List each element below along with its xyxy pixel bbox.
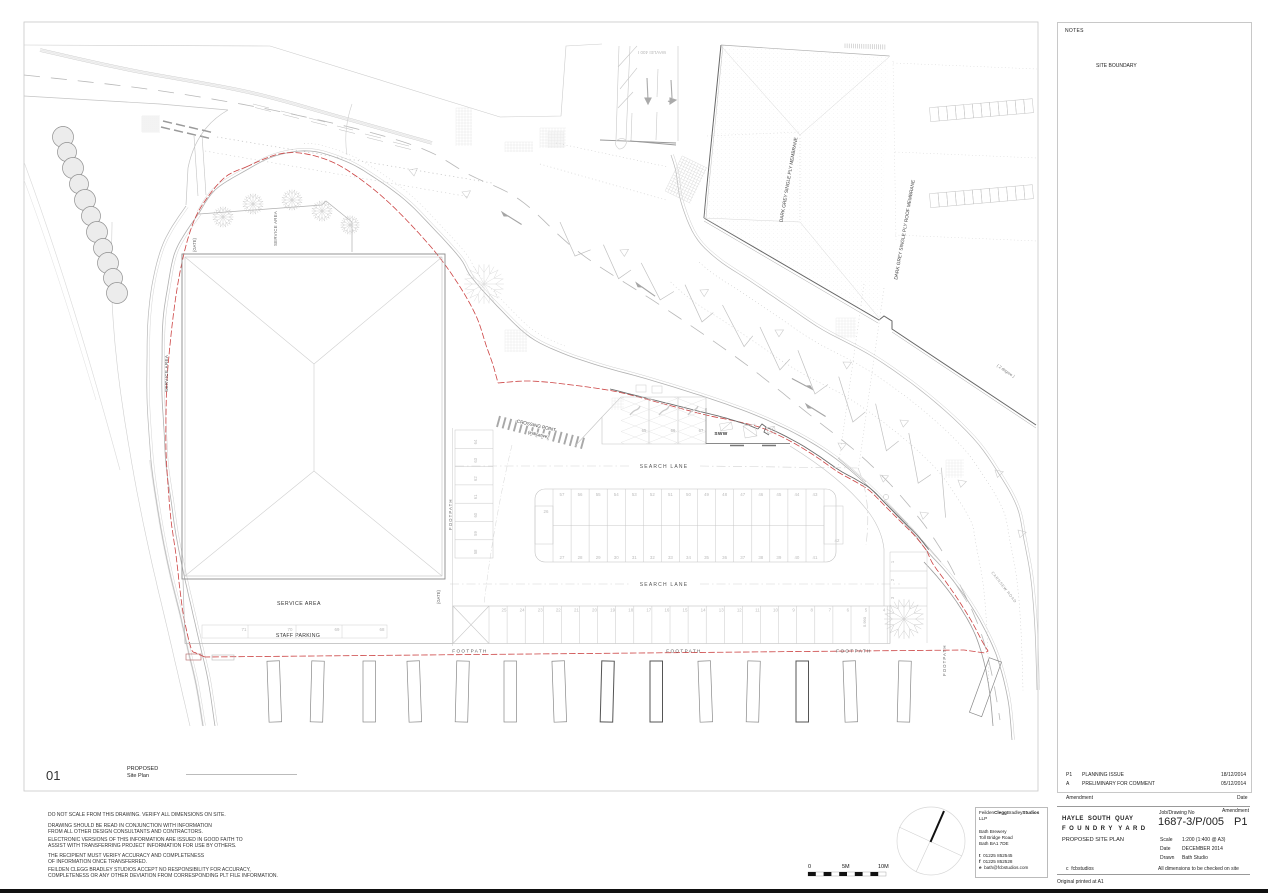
svg-text:19: 19	[610, 608, 615, 613]
svg-text:5.990: 5.990	[862, 616, 867, 627]
svg-text:65: 65	[642, 428, 647, 433]
svg-text:24: 24	[520, 608, 525, 613]
svg-text:9: 9	[792, 608, 795, 613]
svg-text:FOOTPATH: FOOTPATH	[942, 644, 947, 676]
svg-text:52: 52	[650, 492, 655, 497]
svg-text:SEARCH LANE: SEARCH LANE	[640, 582, 689, 588]
svg-text:59: 59	[473, 531, 478, 536]
svg-text:33: 33	[668, 555, 673, 560]
svg-text:5M: 5M	[842, 864, 850, 870]
svg-text:40: 40	[794, 555, 799, 560]
svg-text:44: 44	[794, 492, 799, 497]
svg-text:54: 54	[614, 492, 619, 497]
svg-text:56: 56	[578, 492, 583, 497]
svg-text:28: 28	[578, 555, 583, 560]
svg-text:61: 61	[473, 494, 478, 499]
svg-text:49: 49	[704, 492, 709, 497]
svg-text:DARK GREY SINGLE PLY ROOF MEMB: DARK GREY SINGLE PLY ROOF MEMBRANE	[893, 179, 916, 280]
svg-text:66: 66	[671, 428, 676, 433]
svg-text:1: 1	[890, 560, 895, 563]
svg-text:45: 45	[776, 492, 781, 497]
svg-text:( 2 degree ): ( 2 degree )	[996, 363, 1016, 379]
svg-text:20: 20	[592, 608, 597, 613]
svg-text:50: 50	[686, 492, 691, 497]
svg-text:3: 3	[890, 596, 895, 599]
svg-text:41: 41	[813, 555, 818, 560]
svg-text:2: 2	[890, 578, 895, 581]
svg-text:SEARCH LANE: SEARCH LANE	[640, 464, 689, 470]
svg-text:64: 64	[473, 439, 478, 444]
svg-text:43: 43	[813, 492, 818, 497]
svg-text:22: 22	[556, 608, 561, 613]
svg-text:25: 25	[502, 608, 507, 613]
svg-text:FOOTPATH: FOOTPATH	[666, 649, 702, 654]
svg-text:31: 31	[632, 555, 637, 560]
svg-text:16: 16	[664, 608, 669, 613]
svg-text:47: 47	[740, 492, 745, 497]
svg-text:67: 67	[699, 428, 704, 433]
svg-text:53: 53	[632, 492, 637, 497]
svg-text:58: 58	[473, 549, 478, 554]
svg-text:69: 69	[335, 627, 340, 632]
svg-text:37: 37	[740, 555, 745, 560]
svg-text:34: 34	[686, 555, 691, 560]
svg-text:0: 0	[808, 864, 811, 870]
svg-text:42: 42	[835, 538, 840, 543]
svg-text:10: 10	[773, 608, 778, 613]
svg-text:23: 23	[538, 608, 543, 613]
svg-text:30: 30	[614, 555, 619, 560]
svg-text:60: 60	[473, 512, 478, 517]
svg-text:4: 4	[883, 608, 886, 613]
svg-text:36: 36	[722, 555, 727, 560]
svg-text:48: 48	[722, 492, 727, 497]
svg-text:38: 38	[758, 555, 763, 560]
svg-text:WAVLEI 400 I: WAVLEI 400 I	[638, 50, 666, 55]
svg-text:21: 21	[574, 608, 579, 613]
svg-text:8: 8	[810, 608, 813, 613]
svg-text:29: 29	[596, 555, 601, 560]
svg-text:55: 55	[596, 492, 601, 497]
svg-text:7: 7	[829, 608, 832, 613]
svg-text:18: 18	[628, 608, 633, 613]
svg-text:(GATE): (GATE)	[192, 238, 197, 252]
svg-text:FOOTPATH: FOOTPATH	[452, 649, 488, 654]
svg-text:39: 39	[776, 555, 781, 560]
svg-text:5: 5	[865, 608, 868, 613]
svg-text:71: 71	[242, 627, 247, 632]
svg-text:27: 27	[560, 555, 565, 560]
svg-text:57: 57	[560, 492, 565, 497]
svg-text:SERVICE AREA: SERVICE AREA	[273, 211, 278, 246]
svg-text:6: 6	[847, 608, 850, 613]
svg-text:11: 11	[755, 608, 760, 613]
svg-text:51: 51	[668, 492, 673, 497]
svg-text:70: 70	[288, 627, 293, 632]
svg-text:17: 17	[646, 608, 651, 613]
svg-text:SERVICE AREA: SERVICE AREA	[277, 601, 321, 607]
svg-text:CROSSING POINT: CROSSING POINT	[516, 419, 556, 433]
svg-text:10M: 10M	[878, 864, 889, 870]
svg-text:46: 46	[758, 492, 763, 497]
svg-text:15: 15	[683, 608, 688, 613]
svg-text:SWW: SWW	[714, 431, 727, 437]
svg-text:32: 32	[650, 555, 655, 560]
svg-text:(indicative): (indicative)	[527, 430, 549, 440]
svg-text:35: 35	[704, 555, 709, 560]
svg-text:(GATE): (GATE)	[436, 590, 441, 604]
svg-text:68: 68	[380, 627, 385, 632]
svg-text:CARNSEW ROAD: CARNSEW ROAD	[990, 571, 1017, 604]
svg-text:13: 13	[719, 608, 724, 613]
svg-text:62: 62	[473, 476, 478, 481]
svg-text:SERVICE AREA: SERVICE AREA	[164, 354, 169, 392]
svg-text:12: 12	[737, 608, 742, 613]
svg-text:26: 26	[544, 509, 549, 514]
svg-text:63: 63	[473, 457, 478, 462]
svg-text:14: 14	[701, 608, 706, 613]
svg-text:FOOTPATH: FOOTPATH	[836, 649, 872, 654]
